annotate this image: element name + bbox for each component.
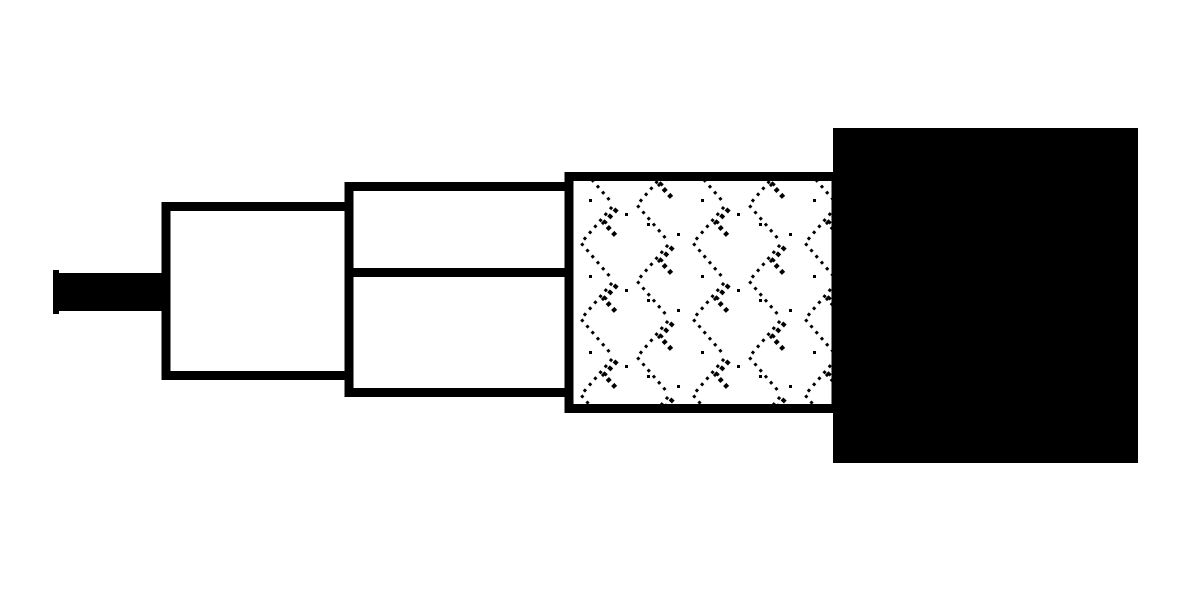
conductor-end-cap <box>53 270 59 314</box>
outer-jacket <box>833 128 1138 463</box>
coaxial-cable-diagram <box>0 0 1200 600</box>
inner-insulation-layer <box>166 207 352 376</box>
center-conductor <box>53 273 167 311</box>
braided-shield <box>569 177 836 409</box>
diagram-canvas <box>0 0 1200 600</box>
outer-insulation-layer <box>349 187 569 393</box>
